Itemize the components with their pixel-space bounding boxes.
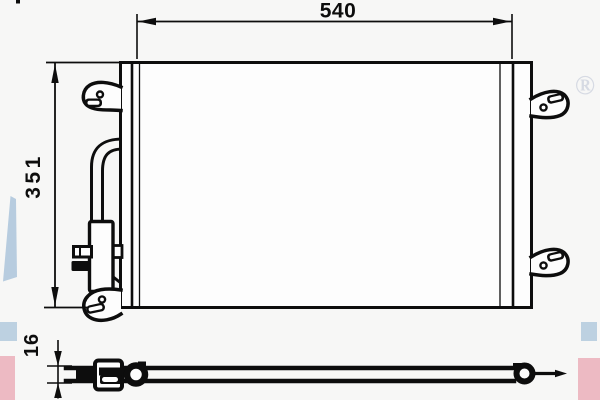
technical-drawing-page: ®: [0, 0, 600, 400]
watermark-logo-wedge: [3, 196, 17, 282]
dimension-height-label: 351: [22, 153, 45, 199]
stray-mark-top-left: [16, 0, 20, 4]
fitting-slot: [102, 377, 118, 382]
side-view-right-fittings: [513, 363, 567, 382]
pipe-stub-tip: [555, 370, 567, 377]
receiver-body: [90, 222, 114, 292]
side-view-left-fittings: [76, 361, 146, 390]
arrowhead-down: [54, 351, 62, 366]
mounting-bracket-top-left: [83, 82, 121, 110]
dimension-width-label: 540: [320, 0, 357, 23]
condenser-front-view: [72, 63, 569, 321]
watermark-pink-block-right: [578, 358, 600, 400]
dimension-depth: 16: [21, 333, 72, 399]
bracket-hole: [97, 92, 103, 98]
bracket-hole: [540, 104, 546, 110]
pipe-ring-right: [517, 366, 533, 382]
dimension-depth-label: 16: [21, 333, 43, 357]
arrowhead-up: [54, 383, 62, 398]
core-outline: [121, 63, 532, 308]
watermark-blue-block-left: [0, 322, 17, 341]
mounting-bracket-bottom-right: [531, 249, 568, 275]
arrowhead-bottom: [51, 287, 58, 306]
connector-stub-upper: [74, 247, 92, 258]
connector-stub-lower: [72, 261, 91, 271]
arrowhead-top: [51, 64, 58, 83]
mounting-bracket-top-right: [531, 91, 568, 117]
inlet-pipe: [92, 139, 123, 223]
arrowhead-right: [493, 18, 511, 25]
bracket-hole: [540, 262, 546, 268]
arrowhead-left: [138, 18, 156, 25]
mounting-bracket-bottom-left: [84, 289, 121, 320]
pipe-ring-left: [127, 366, 145, 384]
bracket-slot: [88, 101, 100, 105]
condenser-dimension-drawing: ®: [0, 0, 600, 400]
pipe-outer-wall: [92, 139, 123, 223]
dimension-width: 540: [137, 0, 512, 59]
condenser-side-view: [66, 361, 567, 390]
watermark-blue-block-right: [581, 322, 597, 341]
registered-trademark-watermark: ®: [575, 70, 595, 100]
bracket-hole: [99, 296, 105, 302]
watermark-pink-block-left: [0, 356, 15, 400]
receiver-drier-block: [72, 222, 123, 292]
